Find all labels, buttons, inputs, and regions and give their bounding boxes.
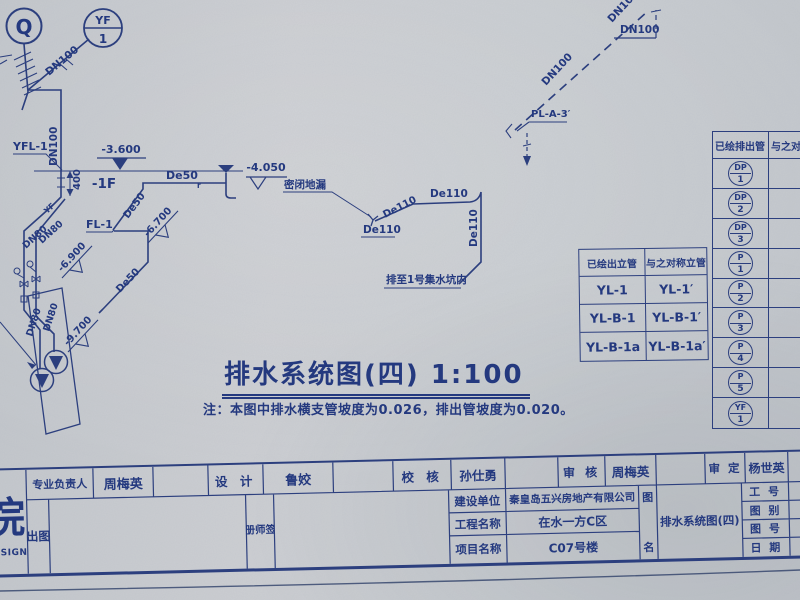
role-label-chief: 专业负责人 (26, 468, 94, 500)
label-de110-v: De110 (468, 209, 480, 247)
drawing-title: 排水系统图(四) 1:100 (222, 354, 530, 399)
institute-logo-sub: DESIGN (0, 546, 31, 561)
pipe-tag-circle: P3 (728, 310, 753, 335)
role-name-chief: 周梅英 (93, 467, 154, 498)
field-label-job-no: 工 号 (741, 482, 788, 501)
project-value-item: C07号楼 (507, 531, 641, 562)
role-name-checker: 孙仕勇 (451, 459, 506, 490)
fig-label-top: 图 (638, 489, 656, 505)
label-de50-h-sub: r (197, 181, 201, 190)
svg-text:1: 1 (99, 32, 107, 46)
label-de50-h: De50 (166, 169, 198, 182)
svg-text:400: 400 (72, 169, 83, 190)
outlet-cell: P3 (713, 308, 769, 338)
label-dn100-vertical: DN100 (48, 127, 60, 166)
field-label-fig-no: 图 号 (742, 519, 789, 538)
svg-text:-4.050: -4.050 (246, 161, 286, 174)
outlet-cell-empty (769, 368, 800, 398)
registered-seal-label: 注册师签章 (246, 494, 276, 569)
riser-row-cell: YL-B-1 (580, 304, 646, 333)
outlet-cell: DP3 (713, 219, 769, 249)
project-value-name: 在水一方C区 (506, 508, 640, 534)
label-yfl1: YFL-1 (12, 140, 48, 153)
pipe-tag-circle: DP2 (728, 191, 753, 216)
role-name-reviewer: 周梅英 (605, 455, 657, 486)
outlet-cell: P4′ (769, 338, 800, 368)
outlet-cell: DP3′ (769, 219, 800, 249)
outlet-cell (769, 159, 800, 189)
outlet-table-header-right: 与之对 (769, 132, 800, 159)
field-label-fig-type: 图 别 (742, 500, 789, 519)
pipe-tag-circle: DP1 (728, 161, 753, 186)
label-fl1: FL-1 (86, 218, 113, 231)
outlet-cell: P5 (713, 368, 769, 398)
drawing-note: 注：本图中排水横支管坡度为0.026，排出管坡度为0.020。 (203, 399, 574, 418)
outlet-cell: P1 (713, 249, 769, 279)
label-floor-drain: 密闭地漏 (284, 178, 326, 191)
vent-circle-Q-label: Q (15, 15, 32, 39)
label-dn100-dash-h: DN100 (620, 24, 659, 36)
outlet-cell: YF1 (713, 398, 769, 428)
outlet-cell: P2 (713, 279, 769, 309)
pipe-tag-circle: YF1 (728, 401, 753, 426)
pipe-tag-circle: P2 (728, 280, 753, 305)
title-block-drawing-name: 排水系统图(四) (656, 483, 743, 559)
outlet-cell: P4 (713, 338, 769, 368)
svg-text:-3.600: -3.600 (101, 143, 141, 156)
role-label-checker: 校 核 (393, 460, 452, 491)
outlet-cell: YF1′ (769, 398, 800, 428)
riser-correspondence-table: 已绘出立管 与之对称立管 YL-1 YL-1′ YL-B-1 YL-B-1′ Y… (578, 247, 709, 362)
label-de110-h: De110 (430, 188, 468, 200)
project-value-owner: 秦皇岛五兴房地产有限公司 (505, 485, 639, 511)
project-label-owner: 建设单位 (448, 489, 506, 513)
pipe-tag-circle: DP3 (728, 221, 753, 246)
riser-row-cell: YL-1 (580, 276, 646, 305)
riser-table-header-left: 已绘出立管 (579, 249, 645, 277)
label-de110-drain: De110 (363, 224, 401, 236)
riser-row-cell: YL-B-1a (580, 332, 646, 361)
pipe-tag-circle: P4 (728, 340, 753, 365)
label-floor-1f: -1F (92, 176, 116, 192)
plot-label: 出图 (27, 499, 51, 573)
outlet-cell: DP2′ (769, 189, 800, 219)
outlet-cell: DP2 (713, 189, 769, 219)
role-label-reviewer: 审 核 (558, 456, 606, 487)
riser-row-cell: YL-1′ (646, 275, 707, 304)
role-label-approver: 审 定 (705, 453, 746, 484)
label-sump-note: 排至1号集水坑内 (386, 273, 467, 286)
title-block: 院 DESIGN 专业负责人 周梅英 设 计 鲁姣 校 核 孙仕勇 审 核 周梅… (0, 449, 800, 577)
outlet-correspondence-table: 已绘排出管 与之对 DP1 DP2 DP2′ DP3 DP3′ P1 P2 P2… (712, 131, 800, 429)
riser-tag-YF1: YF 1 (84, 9, 122, 47)
role-label-designer: 设 计 (208, 464, 264, 495)
project-label-item: 项目名称 (450, 534, 508, 563)
pipe-tag-circle: P5 (728, 370, 753, 395)
photo-of-drawing-sheet: { "drawing": { "title": "排水系统图(四) 1:100"… (0, 0, 800, 600)
riser-table-header-right: 与之对称立管 (645, 248, 706, 276)
outlet-table-header-left: 已绘排出管 (713, 132, 769, 159)
pipe-tag-circle: P1 (728, 251, 753, 276)
field-label-date: 日 期 (743, 537, 790, 556)
fig-label-bottom: 名 (640, 539, 658, 555)
role-name-designer: 鲁姣 (263, 463, 334, 495)
svg-text:YF: YF (94, 14, 110, 27)
riser-row-cell: YL-B-1a′ (646, 331, 707, 360)
riser-row-cell: YL-B-1′ (646, 303, 707, 332)
outlet-cell: P2′ (769, 279, 800, 309)
project-label-name: 工程名称 (449, 512, 507, 536)
outlet-cell: P3′ (769, 308, 800, 338)
role-name-approver: 杨世英 (745, 452, 789, 483)
outlet-cell: DP1 (713, 159, 769, 189)
outlet-cell-empty (769, 249, 800, 279)
label-pl-a3: PL-A-3′ (531, 109, 571, 120)
